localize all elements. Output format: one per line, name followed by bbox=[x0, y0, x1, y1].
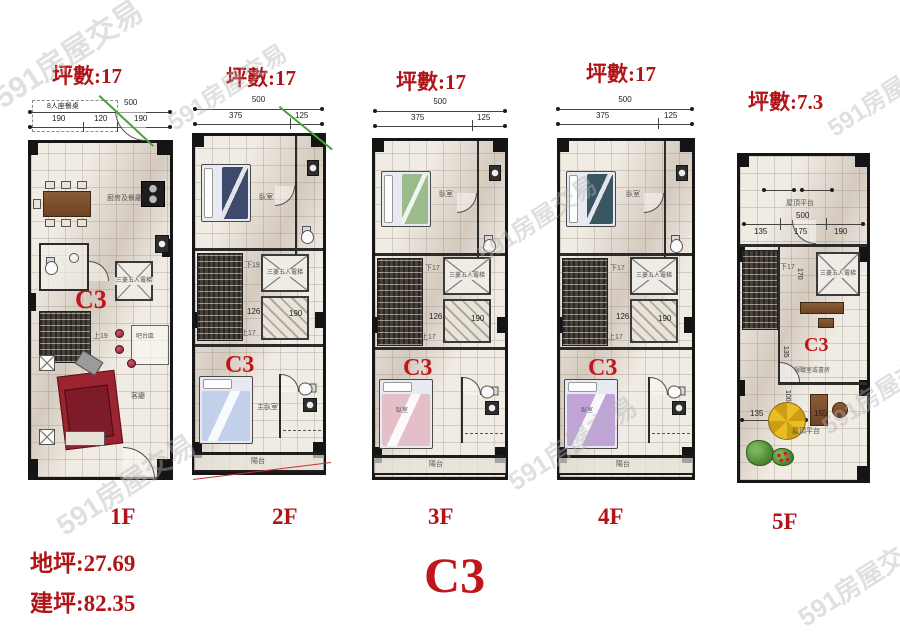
bedspread bbox=[202, 391, 250, 441]
elevator-label: 三菱五人電梯 bbox=[448, 272, 486, 280]
interior-wall bbox=[195, 344, 323, 347]
bar-counter: 吧台區 bbox=[131, 325, 169, 365]
dashed-line bbox=[465, 433, 503, 434]
dimension-dot bbox=[503, 109, 507, 113]
wall-pillar bbox=[859, 246, 869, 262]
toilet-icon bbox=[670, 235, 681, 251]
watermark: 591房屋交易 bbox=[819, 40, 900, 143]
bathroom-door-arc bbox=[275, 186, 295, 206]
loveseat bbox=[65, 431, 105, 446]
wall-pillar bbox=[315, 312, 323, 328]
stair-direction-label: 下17 bbox=[425, 265, 440, 272]
bar-stool bbox=[115, 345, 124, 354]
dimension-label: 125 bbox=[477, 114, 490, 122]
kitchen-dining-label: 廚房及餐廳 bbox=[107, 195, 142, 202]
area-label-2f: 坪數:17 bbox=[226, 62, 296, 92]
floor-plan-3f: 臥室 下17 三菱五人電梯 126 190 上17 C3 臥室 陽台 bbox=[372, 138, 508, 480]
unit-code-inplan: C3 bbox=[403, 355, 432, 382]
patio-chair bbox=[832, 402, 848, 418]
dimension-label: 126 bbox=[429, 313, 442, 321]
bedroom-label: 臥室 bbox=[259, 194, 273, 201]
dimension-dot bbox=[320, 122, 324, 126]
balcony-label: 陽台 bbox=[429, 461, 443, 468]
dimension-dot bbox=[168, 110, 172, 114]
watermark: 591房屋交易 bbox=[790, 523, 900, 634]
built-area-label: 建坪:82.35 bbox=[30, 584, 135, 618]
marker-dot bbox=[762, 188, 766, 192]
dimension-dot bbox=[28, 125, 32, 129]
bedspread bbox=[402, 174, 428, 224]
plant bbox=[746, 440, 774, 466]
interior-wall bbox=[664, 141, 666, 259]
balcony-label: 陽台 bbox=[616, 461, 630, 468]
area-label-3f: 坪數:17 bbox=[396, 66, 466, 96]
stair-direction-label: 下19 bbox=[245, 262, 260, 269]
wall-pillar bbox=[737, 380, 745, 396]
dimension-dot bbox=[28, 110, 32, 114]
bedspread bbox=[382, 394, 430, 446]
bathroom bbox=[39, 243, 89, 291]
dimension-label: 375 bbox=[411, 114, 424, 122]
pillow bbox=[204, 168, 213, 218]
dimension-dot bbox=[690, 122, 694, 126]
area-label-1f: 坪數:17 bbox=[52, 60, 122, 90]
bedroom-label: 臥室 bbox=[581, 408, 593, 414]
dimension-block-3f: 500 375 125 bbox=[375, 98, 505, 132]
toilet-icon bbox=[483, 386, 499, 397]
floor-label-5f: 5F bbox=[772, 509, 798, 535]
dimension-label: 170 bbox=[796, 268, 803, 280]
dimension-dot bbox=[861, 222, 865, 226]
elevator-label: 三菱五人電梯 bbox=[115, 277, 153, 285]
floor-plan-2f: 臥室 下19 三菱五人電梯 126 190 上17 C3 主臥室 陽台 bbox=[192, 133, 326, 475]
unit-code-inplan: C3 bbox=[225, 352, 254, 379]
bar-stool bbox=[115, 329, 124, 338]
dimension-block-4f: 500 375 125 bbox=[558, 96, 692, 130]
stairs bbox=[197, 253, 243, 341]
side-table bbox=[39, 355, 55, 371]
dining-table bbox=[43, 191, 91, 217]
bed: 臥室 bbox=[564, 379, 618, 449]
dimension-label: 155 bbox=[814, 410, 827, 418]
interior-wall bbox=[560, 347, 692, 350]
toilet-icon bbox=[45, 257, 56, 273]
roof-deck-label: 屋頂平台 bbox=[792, 428, 820, 435]
bar-stool bbox=[127, 359, 136, 368]
bed bbox=[566, 171, 616, 227]
dimension-tick bbox=[290, 118, 291, 129]
dimension-label: 135 bbox=[782, 346, 789, 358]
dimension-dot bbox=[373, 109, 377, 113]
wall-pillar bbox=[497, 317, 505, 333]
stair-direction-label: 下17 bbox=[780, 264, 795, 271]
pillow bbox=[384, 175, 393, 223]
wall-pillar bbox=[372, 138, 384, 152]
dimension-label: 125 bbox=[664, 112, 677, 120]
unit-code-inplan: C3 bbox=[804, 334, 828, 357]
stairs bbox=[562, 258, 608, 346]
dimension-label: 375 bbox=[229, 112, 242, 120]
dimension-label: 500 bbox=[124, 99, 137, 107]
plant bbox=[772, 448, 794, 466]
unit-code-title: C3 bbox=[424, 546, 485, 604]
dimension-dot bbox=[503, 124, 507, 128]
dashed-line bbox=[283, 430, 321, 431]
bar-area-label: 吧台區 bbox=[136, 334, 154, 340]
pillow bbox=[203, 379, 232, 389]
dimension-line bbox=[195, 109, 322, 110]
bedroom-label: 臥室 bbox=[396, 408, 408, 414]
dining-chair bbox=[45, 219, 55, 227]
floor-label-3f: 3F bbox=[428, 504, 454, 530]
pillow bbox=[383, 382, 412, 392]
side-table bbox=[39, 429, 55, 445]
dimension-label: 190 bbox=[471, 315, 484, 323]
elevator: 三菱五人電梯 bbox=[630, 257, 678, 295]
floor-plan-sheet: { "watermark": "591房屋交易", "headers": { "… bbox=[0, 0, 900, 634]
dimension-label: 500 bbox=[195, 96, 322, 104]
pillow bbox=[568, 382, 597, 392]
dimension-label: 190 bbox=[52, 115, 65, 123]
wall-pillar bbox=[192, 133, 204, 147]
interior-wall bbox=[778, 382, 867, 385]
wall-pillar bbox=[157, 459, 171, 477]
bedroom-label: 臥室 bbox=[626, 191, 640, 198]
interior-wall bbox=[375, 253, 505, 256]
dimension-dot bbox=[193, 107, 197, 111]
floor-label-1f: 1F bbox=[110, 504, 136, 530]
dimension-label: 100 bbox=[784, 390, 791, 402]
unit-code-inplan: C3 bbox=[588, 355, 617, 382]
bathroom-door-arc bbox=[457, 193, 477, 213]
interior-wall bbox=[375, 347, 505, 350]
dimension-line bbox=[558, 124, 692, 125]
floor-label-4f: 4F bbox=[598, 504, 624, 530]
elevator: 三菱五人電梯 bbox=[115, 261, 153, 301]
wall-pillar bbox=[680, 138, 692, 152]
wall-pillar bbox=[557, 138, 569, 152]
sink-icon bbox=[303, 398, 317, 412]
dimension-label: 500 bbox=[375, 98, 505, 106]
dimension-label: 190 bbox=[134, 115, 147, 123]
floor-plan-5f: 屋頂平台 500 135 175 190 下17 170 三菱五人電梯 C3 視… bbox=[737, 153, 870, 483]
dimension-line bbox=[375, 126, 505, 127]
sink-icon bbox=[69, 253, 79, 263]
master-bedroom-label: 主臥室 bbox=[257, 404, 278, 411]
wall-pillar bbox=[857, 466, 869, 480]
dining-chair bbox=[77, 219, 87, 227]
dimension-block-1f: 8人座餐桌 500 190 120 190 bbox=[30, 96, 170, 136]
toilet-icon bbox=[483, 235, 494, 251]
bed bbox=[201, 164, 251, 222]
stairs bbox=[742, 250, 778, 330]
bedspread bbox=[587, 174, 613, 224]
sink-icon bbox=[676, 165, 688, 181]
dimension-label: 190 bbox=[289, 310, 302, 318]
dimension-line bbox=[375, 111, 505, 112]
dining-chair bbox=[45, 181, 55, 189]
dimension-dot bbox=[193, 122, 197, 126]
sink-icon bbox=[489, 165, 501, 181]
dimension-label: 135 bbox=[750, 410, 763, 418]
bed bbox=[199, 376, 253, 444]
dimension-label: 8人座餐桌 bbox=[47, 103, 79, 110]
area-label-5f: 坪數:7.3 bbox=[748, 86, 823, 116]
balcony-label: 陽台 bbox=[251, 458, 265, 465]
dimension-label: 135 bbox=[754, 228, 767, 236]
marker-dot bbox=[830, 188, 834, 192]
dimension-dot bbox=[168, 125, 172, 129]
marker-dot bbox=[792, 188, 796, 192]
dimension-label: 190 bbox=[658, 315, 671, 323]
wall-pillar bbox=[28, 293, 36, 311]
dimension-label: 175 bbox=[794, 228, 807, 236]
bedspread bbox=[222, 167, 248, 219]
wall-pillar bbox=[28, 140, 38, 155]
dimension-tick bbox=[83, 122, 84, 132]
dimension-label: 500 bbox=[558, 96, 692, 104]
dimension-label: 190 bbox=[834, 228, 847, 236]
brown-sofa bbox=[800, 302, 844, 314]
dimension-tick bbox=[780, 218, 781, 230]
toilet-icon bbox=[301, 383, 317, 394]
wall-pillar bbox=[684, 317, 692, 333]
dining-chair bbox=[61, 219, 71, 227]
dashed-line bbox=[652, 433, 690, 434]
dining-chair bbox=[33, 199, 41, 209]
interior-wall bbox=[195, 248, 323, 251]
dining-chair bbox=[61, 181, 71, 189]
sink-icon bbox=[307, 160, 319, 176]
elevator: 三菱五人電梯 bbox=[261, 254, 309, 292]
wall-pillar bbox=[855, 153, 869, 167]
elevator-label: 三菱五人電梯 bbox=[819, 270, 857, 278]
floor-label-2f: 2F bbox=[272, 504, 298, 530]
floor-plan-1f: 廚房及餐廳 C3 三菱五人電梯 上19 吧台區 客廳 bbox=[28, 140, 173, 480]
bed: 臥室 bbox=[379, 379, 433, 449]
room-label: 視聽室或書房 bbox=[794, 368, 830, 374]
wall-pillar bbox=[737, 153, 749, 167]
floor-plan-4f: 臥室 下17 三菱五人電梯 126 190 上17 C3 臥室 陽台 bbox=[557, 138, 695, 480]
dimension-dot bbox=[740, 418, 744, 422]
dimension-tick bbox=[826, 218, 827, 230]
stair-direction-label: 下17 bbox=[610, 265, 625, 272]
door-arc bbox=[123, 447, 155, 479]
marker-dot bbox=[800, 188, 804, 192]
bathroom-door-arc bbox=[463, 377, 481, 395]
bathroom-door-arc bbox=[281, 374, 299, 392]
marker-line bbox=[764, 190, 794, 191]
dimension-dot bbox=[320, 107, 324, 111]
pillow bbox=[569, 175, 578, 223]
elevator: 三菱五人電梯 bbox=[816, 252, 860, 296]
sink-icon bbox=[485, 401, 499, 415]
elevator-label: 三菱五人電梯 bbox=[266, 269, 304, 277]
bathroom-door-arc bbox=[89, 261, 109, 281]
bathroom-door-arc bbox=[650, 377, 668, 395]
dimension-dot bbox=[556, 107, 560, 111]
dimension-label: 375 bbox=[596, 112, 609, 120]
stair-direction-label: 上17 bbox=[421, 334, 436, 341]
dimension-label: 500 bbox=[796, 212, 809, 220]
dimension-dot bbox=[690, 107, 694, 111]
dining-chair bbox=[77, 181, 87, 189]
dimension-tick bbox=[472, 120, 473, 131]
dimension-tick bbox=[658, 118, 659, 129]
dimension-line bbox=[30, 112, 170, 113]
wall-pillar bbox=[493, 138, 505, 152]
interior-wall bbox=[295, 136, 297, 254]
sink-icon bbox=[672, 401, 686, 415]
dimension-label: 126 bbox=[616, 313, 629, 321]
wall-pillar bbox=[157, 140, 171, 155]
roof-deck-label: 屋頂平台 bbox=[786, 200, 814, 207]
interior-wall bbox=[740, 244, 867, 247]
bedroom-label: 臥室 bbox=[439, 191, 453, 198]
stair-direction-label: 上17 bbox=[608, 334, 623, 341]
dimension-dot bbox=[742, 222, 746, 226]
land-area-label: 地坪:27.69 bbox=[30, 544, 135, 578]
living-room-label: 客廳 bbox=[131, 393, 145, 400]
dimension-dot bbox=[373, 124, 377, 128]
dimension-label: 126 bbox=[247, 308, 260, 316]
interior-wall bbox=[477, 141, 479, 259]
bed bbox=[381, 171, 431, 227]
bedspread bbox=[567, 394, 615, 446]
elevator: 三菱五人電梯 bbox=[443, 257, 491, 295]
shaft bbox=[261, 296, 309, 340]
toilet-icon bbox=[670, 386, 686, 397]
interior-wall bbox=[560, 253, 692, 256]
stair-direction-label: 上17 bbox=[241, 330, 256, 337]
dimension-line bbox=[30, 127, 170, 128]
toilet-icon bbox=[301, 226, 312, 242]
brown-table bbox=[818, 318, 834, 328]
kitchen-sink-icon bbox=[155, 235, 169, 253]
area-label-4f: 坪數:17 bbox=[586, 58, 656, 88]
stove-icon bbox=[141, 181, 165, 207]
dimension-line bbox=[558, 109, 692, 110]
marker-line bbox=[802, 190, 832, 191]
dimension-dot bbox=[556, 122, 560, 126]
elevator-label: 三菱五人電梯 bbox=[635, 272, 673, 280]
stairs bbox=[377, 258, 423, 346]
bathroom-door-arc bbox=[644, 193, 664, 213]
unit-code-inplan: C3 bbox=[75, 285, 107, 315]
wall-pillar bbox=[28, 459, 38, 477]
dimension-label: 120 bbox=[94, 115, 107, 123]
stair-direction-label: 上19 bbox=[93, 333, 108, 340]
